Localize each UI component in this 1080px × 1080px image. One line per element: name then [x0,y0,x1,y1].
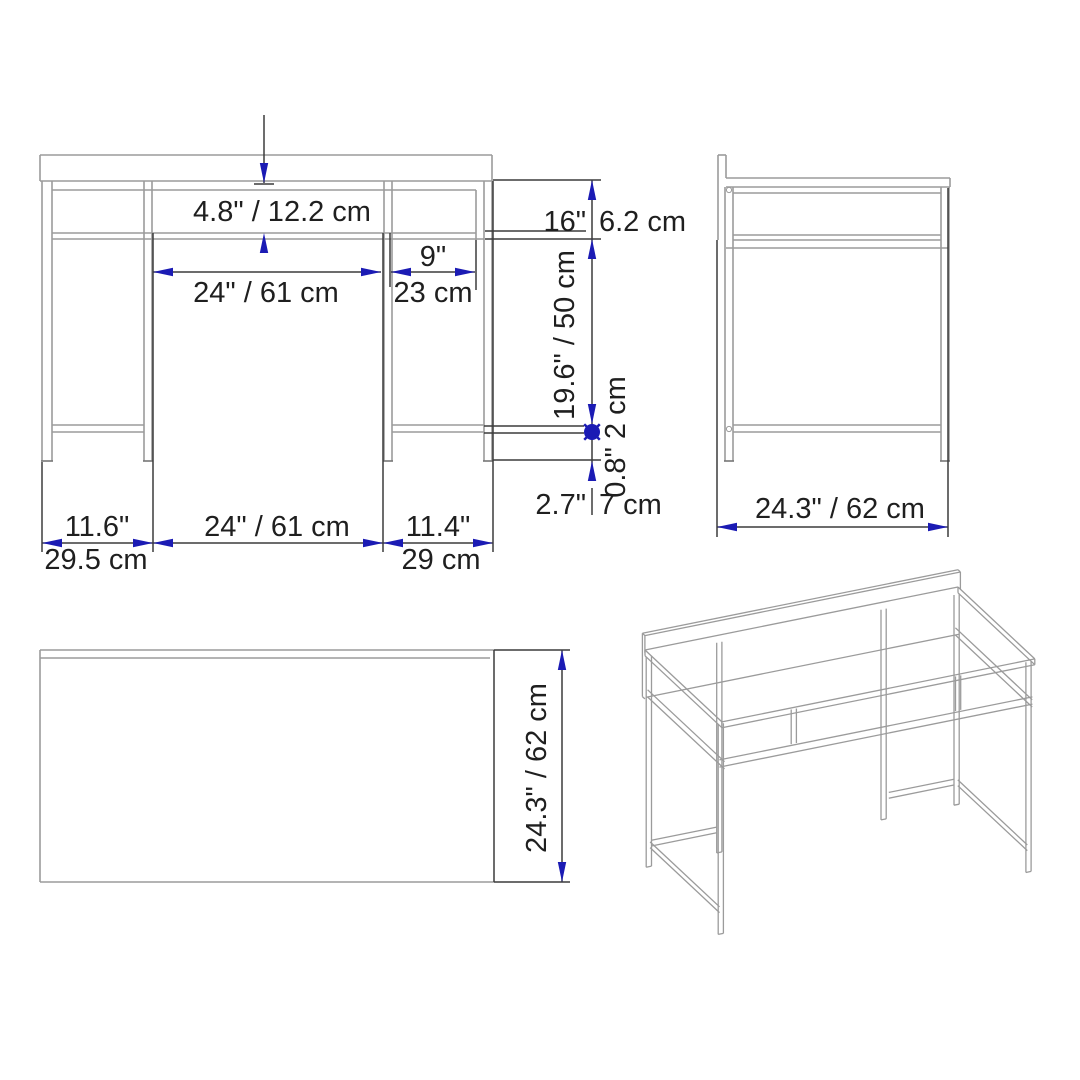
dimension-arrowhead [558,650,566,670]
iso-object-line [718,933,723,934]
dim-top-depth-label: 24.3" / 62 cm [521,683,553,853]
desk-dimension-drawing: 4.8" / 12.2 cm 24" / 61 cm 9" 23 cm 16" … [0,0,1080,1080]
dimension-arrowhead [363,539,383,547]
dim-depth-label: 24.3" / 62 cm [755,493,925,525]
iso-object-line [645,572,961,636]
dim-knee-clearance-label: 19.6" / 50 cm [549,250,581,420]
dimension-arrowhead [588,239,596,259]
dimension-arrowhead [717,523,737,531]
iso-object-line [650,848,719,913]
dimension-arrowhead [928,523,948,531]
dim-shelf-height-label: 4.8" / 12.2 cm [193,196,371,228]
dimension-arrowhead [361,268,381,276]
dimension-arrowhead [558,862,566,882]
dimension-arrowhead [455,268,475,276]
iso-object-line [652,827,717,840]
top-view [40,650,494,882]
iso-object-line [958,786,1028,851]
dimension-arrowhead [260,163,268,183]
iso-object-line [645,656,722,728]
iso-object-line [642,697,645,699]
iso-object-line [954,804,959,805]
iso-object-line [648,690,725,762]
dim-left-span-cm: 29.5 cm [44,544,147,576]
iso-object-line [955,628,1032,700]
dim-right-span-cm: 29 cm [402,544,481,576]
iso-object-line [646,866,651,867]
side-screw-hole [726,426,731,431]
side-view-labels: 24.3" / 62 cm [755,493,925,525]
dimension-arrowhead [383,539,403,547]
iso-object-line [958,570,960,572]
iso-object-line [889,779,954,792]
dimension-arrowhead [391,268,411,276]
iso-object-line [719,697,1032,760]
dimension-arrowhead [260,233,268,253]
top-view-labels: 24.3" / 62 cm [521,683,553,853]
iso-object-line [717,852,722,853]
technical-drawing-page: 4.8" / 12.2 cm 24" / 61 cm 9" 23 cm 16" … [0,0,1080,1080]
dim-frame-height-inches: 16" [543,206,586,238]
dim-frame-height-cm: 6.2 cm [599,206,686,238]
dim-center-span-label: 24" / 61 cm [204,511,350,543]
side-screw-hole [726,187,731,192]
dim-opening-width-label: 24" / 61 cm [193,277,339,309]
isometric-view [642,570,1034,935]
iso-object-line [646,634,959,697]
iso-object-line [958,780,1028,845]
dim-foot-clearance-cm: 7 cm [599,489,662,521]
iso-object-line [642,570,958,634]
dimension-arrowhead [588,461,596,481]
side-view [718,155,950,461]
iso-object-line [1026,871,1031,872]
dim-right-opening-cm: 23 cm [394,277,473,309]
iso-object-line [722,665,1035,728]
dimension-arrowhead [588,404,596,424]
dim-stretcher-label: 0.8" 2 cm [600,376,632,498]
iso-object-line [881,819,886,820]
iso-object-line [652,833,717,846]
iso-object-line [645,587,958,650]
iso-object-line [648,697,725,769]
iso-object-line [958,593,1035,665]
iso-object-line [650,842,719,907]
iso-object-line [889,785,954,798]
dim-right-opening-inches: 9" [420,241,446,273]
dimension-arrowhead [153,268,173,276]
iso-object-line [645,650,722,722]
dimension-arrowhead [588,180,596,200]
dim-right-span-inches: 11.4" [406,511,471,543]
dim-foot-clearance-inches: 2.7" [535,489,586,521]
dim-left-span-inches: 11.6" [65,511,130,543]
dimension-arrowhead [153,539,173,547]
